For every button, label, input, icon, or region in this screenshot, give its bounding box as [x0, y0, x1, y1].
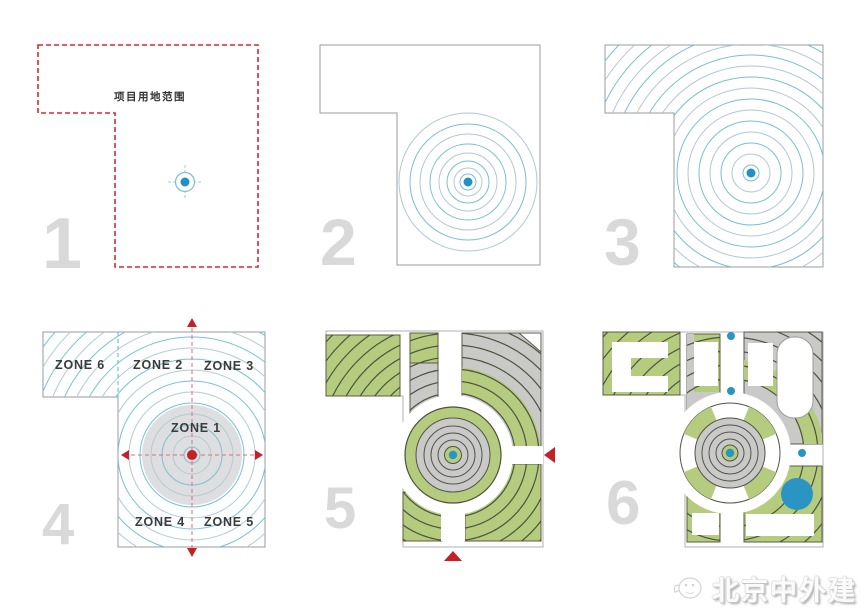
building-southeast — [746, 514, 814, 536]
panel-number-4: 4 — [42, 492, 74, 557]
panel-4-zoning: ZONE 6 ZONE 2 ZONE 3 ZONE 1 ZONE 4 ZONE … — [0, 260, 387, 612]
panel-1-site-boundary: 项目用地范围 1 — [38, 45, 258, 284]
building-mid — [694, 342, 718, 386]
building-southwest — [692, 513, 719, 535]
zone-label-5: ZONE 5 — [204, 515, 254, 529]
site-boundary-label: 项目用地范围 — [114, 90, 186, 103]
central-plaza — [393, 395, 513, 515]
node-dot-north — [727, 332, 735, 340]
diagram-canvas: 项目用地范围 1 2 3 — [0, 0, 867, 612]
zone-label-2: ZONE 2 — [133, 358, 183, 372]
building-capsule — [777, 337, 813, 418]
pond — [781, 478, 813, 510]
node-dot-mid — [727, 387, 735, 395]
entry-arrow-south-icon — [444, 551, 462, 561]
zone-label-3: ZONE 3 — [204, 359, 254, 373]
panel-6-refined-plan: 6 — [516, 239, 867, 612]
zone-label-6: ZONE 6 — [55, 358, 105, 372]
panel-5-landscape-concept: 5 — [247, 249, 659, 612]
central-plaza — [669, 392, 791, 514]
company-logo-icon — [672, 572, 706, 606]
zone-ripples — [0, 260, 387, 612]
panel-number-6: 6 — [606, 469, 640, 538]
watermark: 北京中外建 — [672, 569, 857, 608]
entry-arrow-east-icon — [544, 447, 555, 463]
panel-number-1: 1 — [42, 204, 82, 284]
axis-center-dot — [187, 450, 197, 460]
panel-number-3: 3 — [604, 205, 641, 279]
concept-evolution-diagram: 项目用地范围 1 2 3 — [0, 0, 867, 612]
panel-number-5: 5 — [324, 476, 356, 541]
center-dot — [747, 169, 756, 178]
watermark-text: 北京中外建 — [712, 569, 857, 608]
building-northeast — [748, 343, 773, 386]
zone-label-1: ZONE 1 — [171, 421, 221, 435]
center-dot — [464, 178, 473, 187]
plaza-center-dot — [449, 451, 457, 459]
panel-3-ripples-full: 3 — [556, 0, 867, 368]
marker-dot — [181, 178, 190, 187]
arrow-up-icon — [187, 318, 197, 327]
plaza-center-dot — [726, 449, 734, 457]
arrow-down-icon — [187, 548, 197, 557]
panel-2-ripples: 2 — [320, 45, 540, 279]
panel-number-2: 2 — [320, 205, 357, 279]
node-dot-east — [798, 449, 806, 457]
zone-label-4: ZONE 4 — [135, 515, 185, 529]
